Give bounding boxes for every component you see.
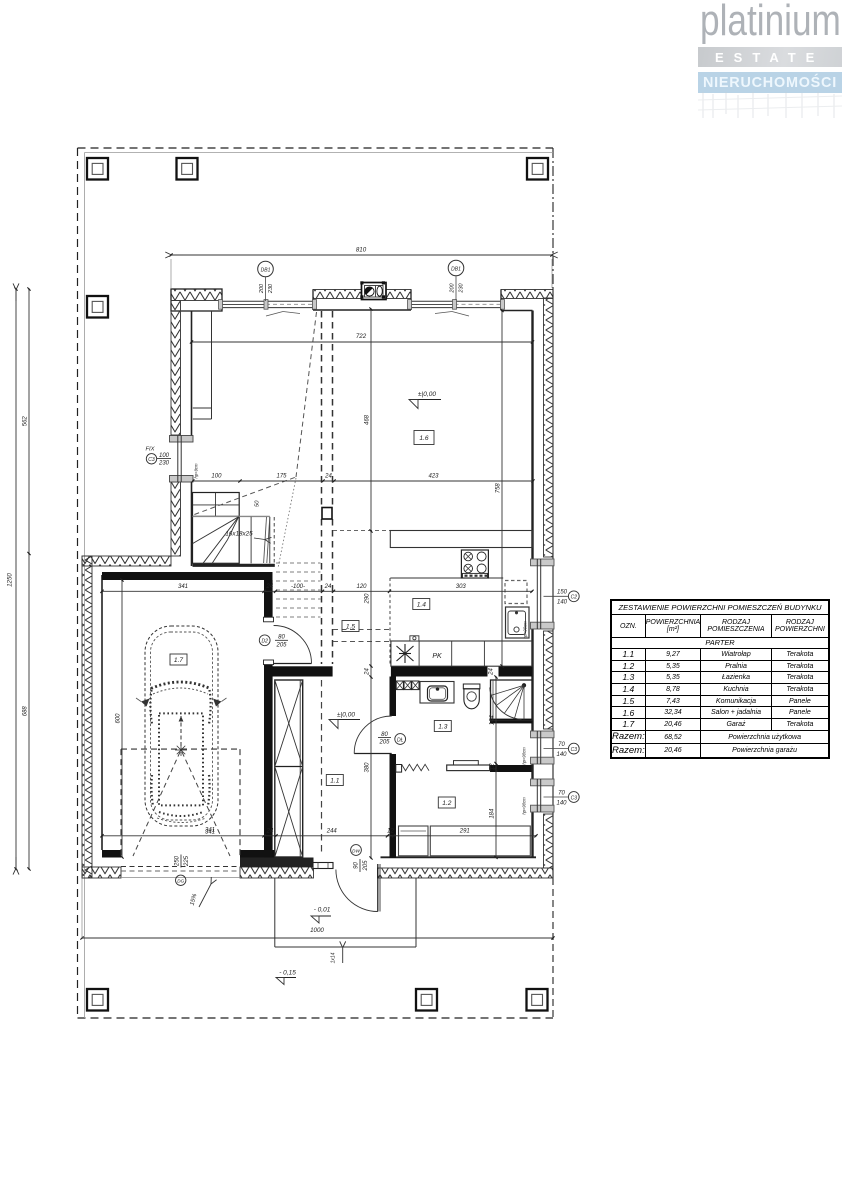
- svg-text:140: 140: [556, 800, 567, 806]
- svg-text:D2: D2: [261, 639, 268, 645]
- svg-text:230: 230: [459, 282, 465, 293]
- svg-text:230: 230: [268, 283, 274, 294]
- svg-text:200: 200: [450, 282, 456, 293]
- svg-text:±|0,00: ±|0,00: [418, 391, 436, 398]
- svg-text:150: 150: [557, 590, 568, 596]
- svg-text:hp=90cm: hp=90cm: [523, 621, 528, 639]
- svg-text:24: 24: [324, 584, 332, 590]
- svg-text:230: 230: [158, 461, 170, 467]
- svg-text:200: 200: [259, 283, 265, 294]
- svg-text:175: 175: [276, 474, 287, 480]
- svg-text:1.5: 1.5: [346, 623, 355, 630]
- svg-text:DW: DW: [352, 848, 360, 853]
- svg-text:1.1: 1.1: [330, 777, 339, 784]
- svg-text:12: 12: [387, 828, 394, 834]
- svg-text:80: 80: [278, 635, 285, 641]
- svg-text:C3: C3: [571, 747, 578, 753]
- svg-text:-100-: -100-: [291, 584, 305, 590]
- svg-text:24: 24: [365, 668, 371, 676]
- svg-text:16x18x25: 16x18x25: [225, 531, 253, 538]
- svg-text:1.6: 1.6: [419, 435, 428, 442]
- svg-text:120: 120: [356, 584, 367, 590]
- svg-text:303: 303: [456, 584, 467, 590]
- svg-text:hp=90cm: hp=90cm: [522, 797, 527, 815]
- svg-text:164: 164: [490, 715, 496, 726]
- svg-text:C3: C3: [571, 795, 578, 801]
- svg-text:758: 758: [496, 483, 502, 494]
- svg-text:12: 12: [490, 763, 496, 770]
- svg-text:FIX: FIX: [145, 447, 155, 453]
- svg-text:15%: 15%: [190, 893, 199, 907]
- svg-text:DŁ: DŁ: [397, 737, 404, 743]
- svg-text:24: 24: [266, 828, 274, 834]
- svg-text:PK: PK: [432, 653, 442, 660]
- svg-text:1x14: 1x14: [331, 952, 337, 963]
- svg-text:C3: C3: [148, 457, 155, 463]
- svg-text:24: 24: [489, 668, 495, 676]
- svg-text:205: 205: [378, 740, 390, 746]
- svg-text:hp=9cm: hp=9cm: [194, 463, 199, 479]
- svg-text:90: 90: [354, 862, 360, 869]
- svg-text:205: 205: [275, 642, 287, 648]
- svg-text:184: 184: [490, 808, 496, 819]
- svg-text:562: 562: [23, 416, 29, 427]
- svg-text:70: 70: [558, 790, 565, 796]
- svg-text:1.3: 1.3: [438, 723, 447, 730]
- svg-text:290: 290: [365, 593, 371, 605]
- svg-text:341: 341: [205, 828, 215, 834]
- svg-text:600: 600: [116, 713, 122, 724]
- svg-text:50: 50: [255, 500, 261, 507]
- svg-text:70: 70: [558, 742, 565, 748]
- svg-text:810: 810: [356, 247, 367, 254]
- svg-text:244: 244: [326, 828, 338, 834]
- svg-text:24: 24: [265, 584, 273, 590]
- svg-text:24: 24: [324, 474, 332, 480]
- svg-text:100: 100: [211, 474, 222, 480]
- svg-text:DB1: DB1: [451, 267, 461, 273]
- svg-text:1.2: 1.2: [442, 800, 451, 807]
- svg-text:722: 722: [356, 333, 367, 340]
- svg-text:- 0,15: - 0,15: [279, 970, 296, 977]
- svg-text:291: 291: [459, 828, 470, 834]
- svg-text:100: 100: [159, 453, 170, 459]
- svg-text:250: 250: [175, 855, 181, 867]
- svg-text:C2: C2: [571, 595, 578, 601]
- svg-text:688: 688: [23, 706, 29, 717]
- svg-text:DG: DG: [177, 879, 184, 884]
- svg-text:1.4: 1.4: [417, 601, 426, 608]
- svg-text:140: 140: [556, 752, 567, 758]
- svg-text:341: 341: [178, 584, 188, 590]
- svg-text:1250: 1250: [7, 573, 14, 587]
- svg-text:DB1: DB1: [261, 268, 271, 274]
- svg-text:±|0,00: ±|0,00: [337, 712, 355, 719]
- svg-text:1.7: 1.7: [174, 657, 183, 664]
- svg-text:80: 80: [381, 732, 388, 738]
- svg-text:423: 423: [428, 474, 439, 480]
- svg-text:- 0,01: - 0,01: [314, 907, 331, 914]
- svg-text:205: 205: [363, 860, 369, 872]
- svg-text:225: 225: [184, 855, 190, 867]
- svg-text:hp=90cm: hp=90cm: [522, 747, 527, 765]
- svg-text:380: 380: [365, 762, 371, 773]
- svg-text:1000: 1000: [310, 927, 324, 934]
- svg-text:140: 140: [557, 600, 568, 606]
- svg-text:468: 468: [365, 414, 371, 425]
